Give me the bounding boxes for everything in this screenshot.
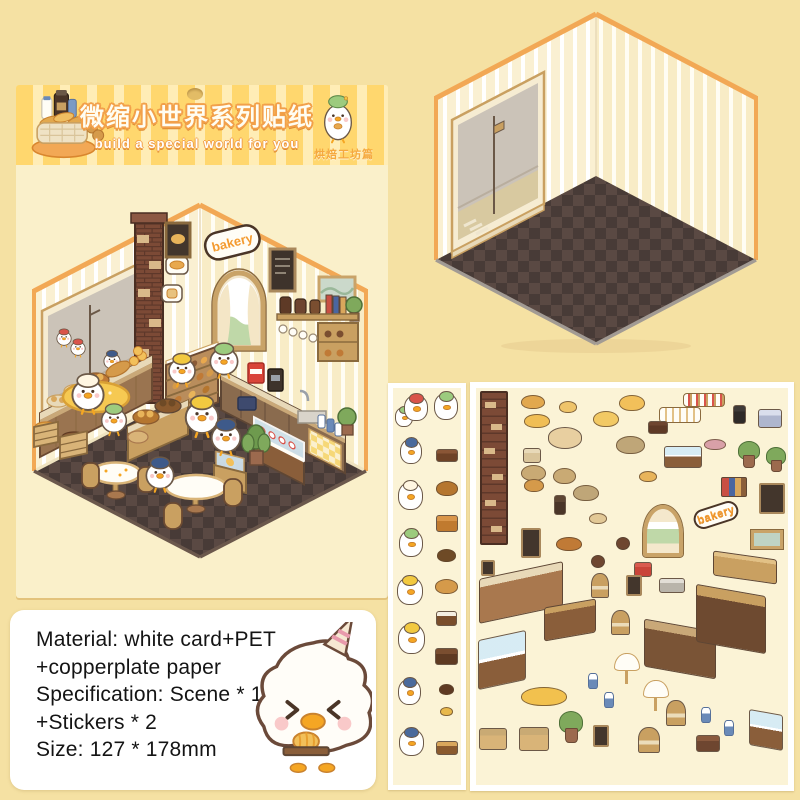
duck-baker-illustration [254,622,372,780]
sticker-buns-quad [593,411,619,427]
series-title: 微缩小世界系列贴纸 [78,97,316,132]
sticker-bakery-sign: bakery [691,498,741,531]
sticker-dough-mat-2 [573,485,599,501]
sticker-menu-chalkboard [759,483,785,514]
sticker-kitchen-scale [733,405,746,424]
sticker-sheet-large: bakery [470,382,794,791]
sticker-chocolate-tray [436,449,458,462]
sticker-duck-waving [399,729,424,756]
sticker-cupcake-row-berry [683,393,725,407]
sticker-wall-cabinet [713,551,777,585]
sticker-cafe-chair-2 [611,610,630,635]
sticker-stool-2 [591,555,605,568]
sticker-brick-column [480,391,508,545]
sticker-landscape-frame [751,530,783,549]
sticker-books-stack [721,477,747,497]
sticker-duck-red-beret [404,395,428,421]
sticker-bread-rolls [436,481,458,496]
sticker-bread-display-case [478,630,526,690]
sticker-picnic-table [548,427,582,449]
sticker-yellow-rug [521,687,567,706]
sticker-flour-sack-2 [553,468,576,484]
sticker-sandwich-case [664,446,702,468]
sticker-dough-mat [616,436,645,454]
empty-room-preview [430,8,760,353]
sticker-bread-pair [521,395,545,409]
sticker-umbrella-2 [643,680,667,711]
menu-chalkboard [270,249,295,291]
toast-plaque-icon [162,285,182,302]
sticker-jar-cabinet [648,421,668,434]
sticker-milk-bottles-3 [701,707,711,723]
banner-titles: 微缩小世界系列贴纸 build a special world for you [78,97,316,151]
sticker-stool-1 [616,537,630,550]
sticker-cash-register [758,409,782,428]
sticker-mini-buns [639,471,657,482]
sticker-cupcake-duo [559,401,577,413]
sticker-cafe-chair-4 [666,700,686,726]
sticker-butter-slices [440,707,453,716]
sticker-duck-yellow-beret [397,577,423,605]
duck-mascot-icon [320,89,356,145]
product-card: 微缩小世界系列贴纸 build a special world for you … [16,85,388,598]
sticker-umbrella-1 [614,653,638,684]
sticker-shelf-unit [696,584,766,654]
sticker-big-buns [619,395,645,411]
sticker-photo-frame [481,560,495,576]
sticker-cafe-chair-3 [638,727,660,753]
sticker-sheet-small [388,383,466,790]
croissant-plaque-icon [166,257,188,274]
sticker-potted-palm [559,711,581,743]
sticker-bread-crate-1 [479,728,507,750]
sticker-duck-with-bag [398,624,425,654]
sticker-bread-loaf [436,741,458,755]
sticker-plant-2 [766,447,784,472]
sticker-bread-basket [556,537,582,551]
sticker-easel-frame [626,575,642,596]
sheet-large-items: bakery [477,389,787,784]
product-photo: 微缩小世界系列贴纸 build a special world for you … [0,0,800,800]
sticker-milk-bottles-1 [588,673,598,689]
sticker-duck-green-beret [434,393,458,420]
sticker-mini-display-cart [749,709,783,751]
sticker-croissants [435,579,458,594]
arched-window [212,269,266,351]
sticker-milk-bottles-2 [604,692,614,708]
bakery-scene: bakery [16,165,388,598]
sticker-duck-portrait [521,528,541,558]
bread-picture-frame [166,223,190,257]
sticker-cafe-chair-1 [591,573,609,598]
sticker-waffle-stack [436,515,458,532]
sticker-milk-bottles-4 [724,720,734,736]
sticker-sink-unit [659,578,685,593]
sticker-chocolate-bars [435,648,458,665]
sticker-bread-crate-2 [519,727,549,751]
sticker-duck-portrait-2 [593,725,609,747]
sticker-cupcakes-pair [436,611,457,626]
sticker-jar-basket [523,448,541,463]
sticker-duck-green-eating [399,530,423,557]
sticker-duck-sailor [398,679,421,705]
sticker-plant-1 [738,441,758,468]
sticker-choco-drops [439,684,454,695]
sticker-cutting-board [589,513,607,524]
sticker-pepper-grinders [554,495,566,515]
sticker-arch-window [643,505,683,557]
series-subtitle: build a special world for you [78,136,316,151]
sticker-sushi-rolls [704,439,726,450]
spec-info-box: Material: white card+PET +copperplate pa… [10,610,376,790]
sticker-duck-cream-hat [398,482,423,510]
sticker-cookies [437,549,456,562]
sticker-buns-trio [524,414,550,428]
card-banner: 微缩小世界系列贴纸 build a special world for you … [16,85,388,165]
edition-label: 烘焙工坊篇 [314,146,374,162]
sticker-coffee-grinders [696,735,720,752]
sheet-small-items [394,389,460,784]
sticker-duck-navy-cap [400,439,422,464]
sticker-croissant-pair [524,479,544,492]
